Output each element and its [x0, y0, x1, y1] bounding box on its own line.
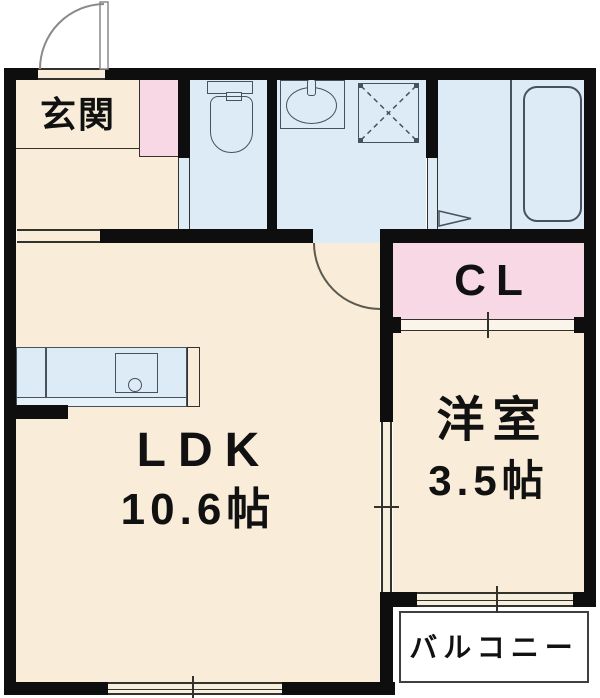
window-tick-ldk [192, 676, 194, 698]
wall-washroom-bath [426, 80, 438, 158]
closet-door-jamb-right [574, 317, 596, 333]
ldk-label: LDK [16, 426, 380, 476]
wall-ldk-east-upper [380, 229, 393, 422]
washer-pan [358, 83, 419, 143]
bathroom-door [427, 158, 438, 229]
balcony-label: バルコニー [399, 633, 589, 662]
western-room-label: 洋室 [393, 396, 584, 446]
wall-mid-horizontal-right [380, 229, 596, 243]
entrance-door-arc [40, 4, 104, 69]
wall-western-bottom-right [573, 592, 596, 607]
kitchen-counter [16, 347, 187, 398]
shoe-cabinet [139, 79, 179, 157]
wall-left [4, 68, 16, 695]
kitchen-sink-drain [128, 378, 142, 392]
kitchen-counter-end-panel [187, 347, 200, 407]
hall-ldk-opening [17, 229, 100, 243]
kitchen-wall-stub [4, 405, 68, 419]
western-room-size-label: 3.5帖 [393, 459, 584, 503]
wall-ldk-east-lower [380, 592, 393, 695]
genkan-label: 玄関 [16, 96, 140, 134]
bathtub-deck-edge [510, 80, 512, 229]
sliding-window-ldk [108, 682, 282, 695]
wall-genkan-toilet [178, 80, 190, 158]
wall-top [105, 68, 596, 80]
wall-toilet-washroom [267, 80, 277, 243]
washroom-door-opening [313, 229, 380, 243]
wall-western-bottom-left [380, 592, 417, 607]
closet-door-tick [487, 312, 489, 338]
window-tick-western-room [496, 586, 498, 613]
ldk-size-label: 10.6帖 [16, 487, 380, 533]
entrance-threshold [38, 68, 105, 80]
sliding-window-western-room [417, 592, 573, 607]
toilet-door [178, 158, 190, 229]
entrance-door-leaf [100, 2, 108, 69]
closet-door-jamb-left [393, 317, 401, 333]
kitchen-counter-divider [45, 348, 47, 397]
wall-bottom-ldk-left [4, 682, 108, 695]
bathtub [523, 86, 582, 222]
toilet-bowl [210, 96, 253, 153]
wall-mid-horizontal-left [100, 229, 313, 243]
wall-bottom-ldk-right [282, 682, 395, 695]
floor-plan: 玄関 CL LDK 10.6帖 洋室 3.5帖 バルコニー [0, 0, 600, 698]
washbasin-tap [307, 79, 316, 96]
wall-right [584, 68, 596, 607]
closet-label: CL [393, 258, 584, 304]
